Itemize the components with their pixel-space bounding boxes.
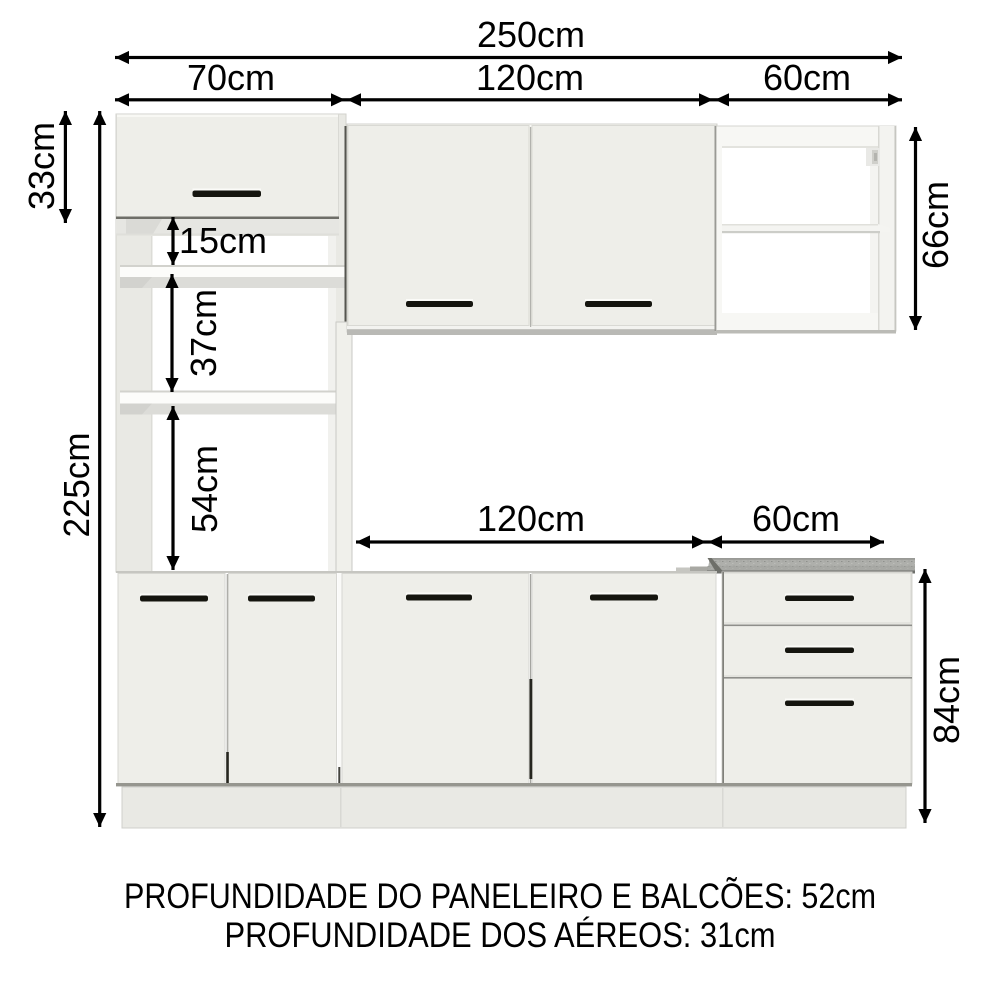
svg-text:33cm: 33cm <box>21 122 62 210</box>
svg-text:37cm: 37cm <box>183 289 224 377</box>
svg-text:54cm: 54cm <box>184 445 225 533</box>
svg-text:60cm: 60cm <box>752 498 840 539</box>
svg-text:120cm: 120cm <box>476 57 584 98</box>
svg-text:120cm: 120cm <box>477 498 585 539</box>
svg-text:PROFUNDIDADE DO PANELEIRO E BA: PROFUNDIDADE DO PANELEIRO E BALCÕES: 52c… <box>124 876 876 916</box>
svg-text:60cm: 60cm <box>763 57 851 98</box>
svg-text:250cm: 250cm <box>477 14 585 55</box>
svg-text:66cm: 66cm <box>915 181 956 269</box>
svg-text:70cm: 70cm <box>187 57 275 98</box>
svg-text:84cm: 84cm <box>926 656 967 744</box>
svg-text:PROFUNDIDADE DOS AÉREOS: 31cm: PROFUNDIDADE DOS AÉREOS: 31cm <box>225 916 776 955</box>
svg-text:225cm: 225cm <box>56 433 97 538</box>
svg-text:15cm: 15cm <box>179 220 267 261</box>
